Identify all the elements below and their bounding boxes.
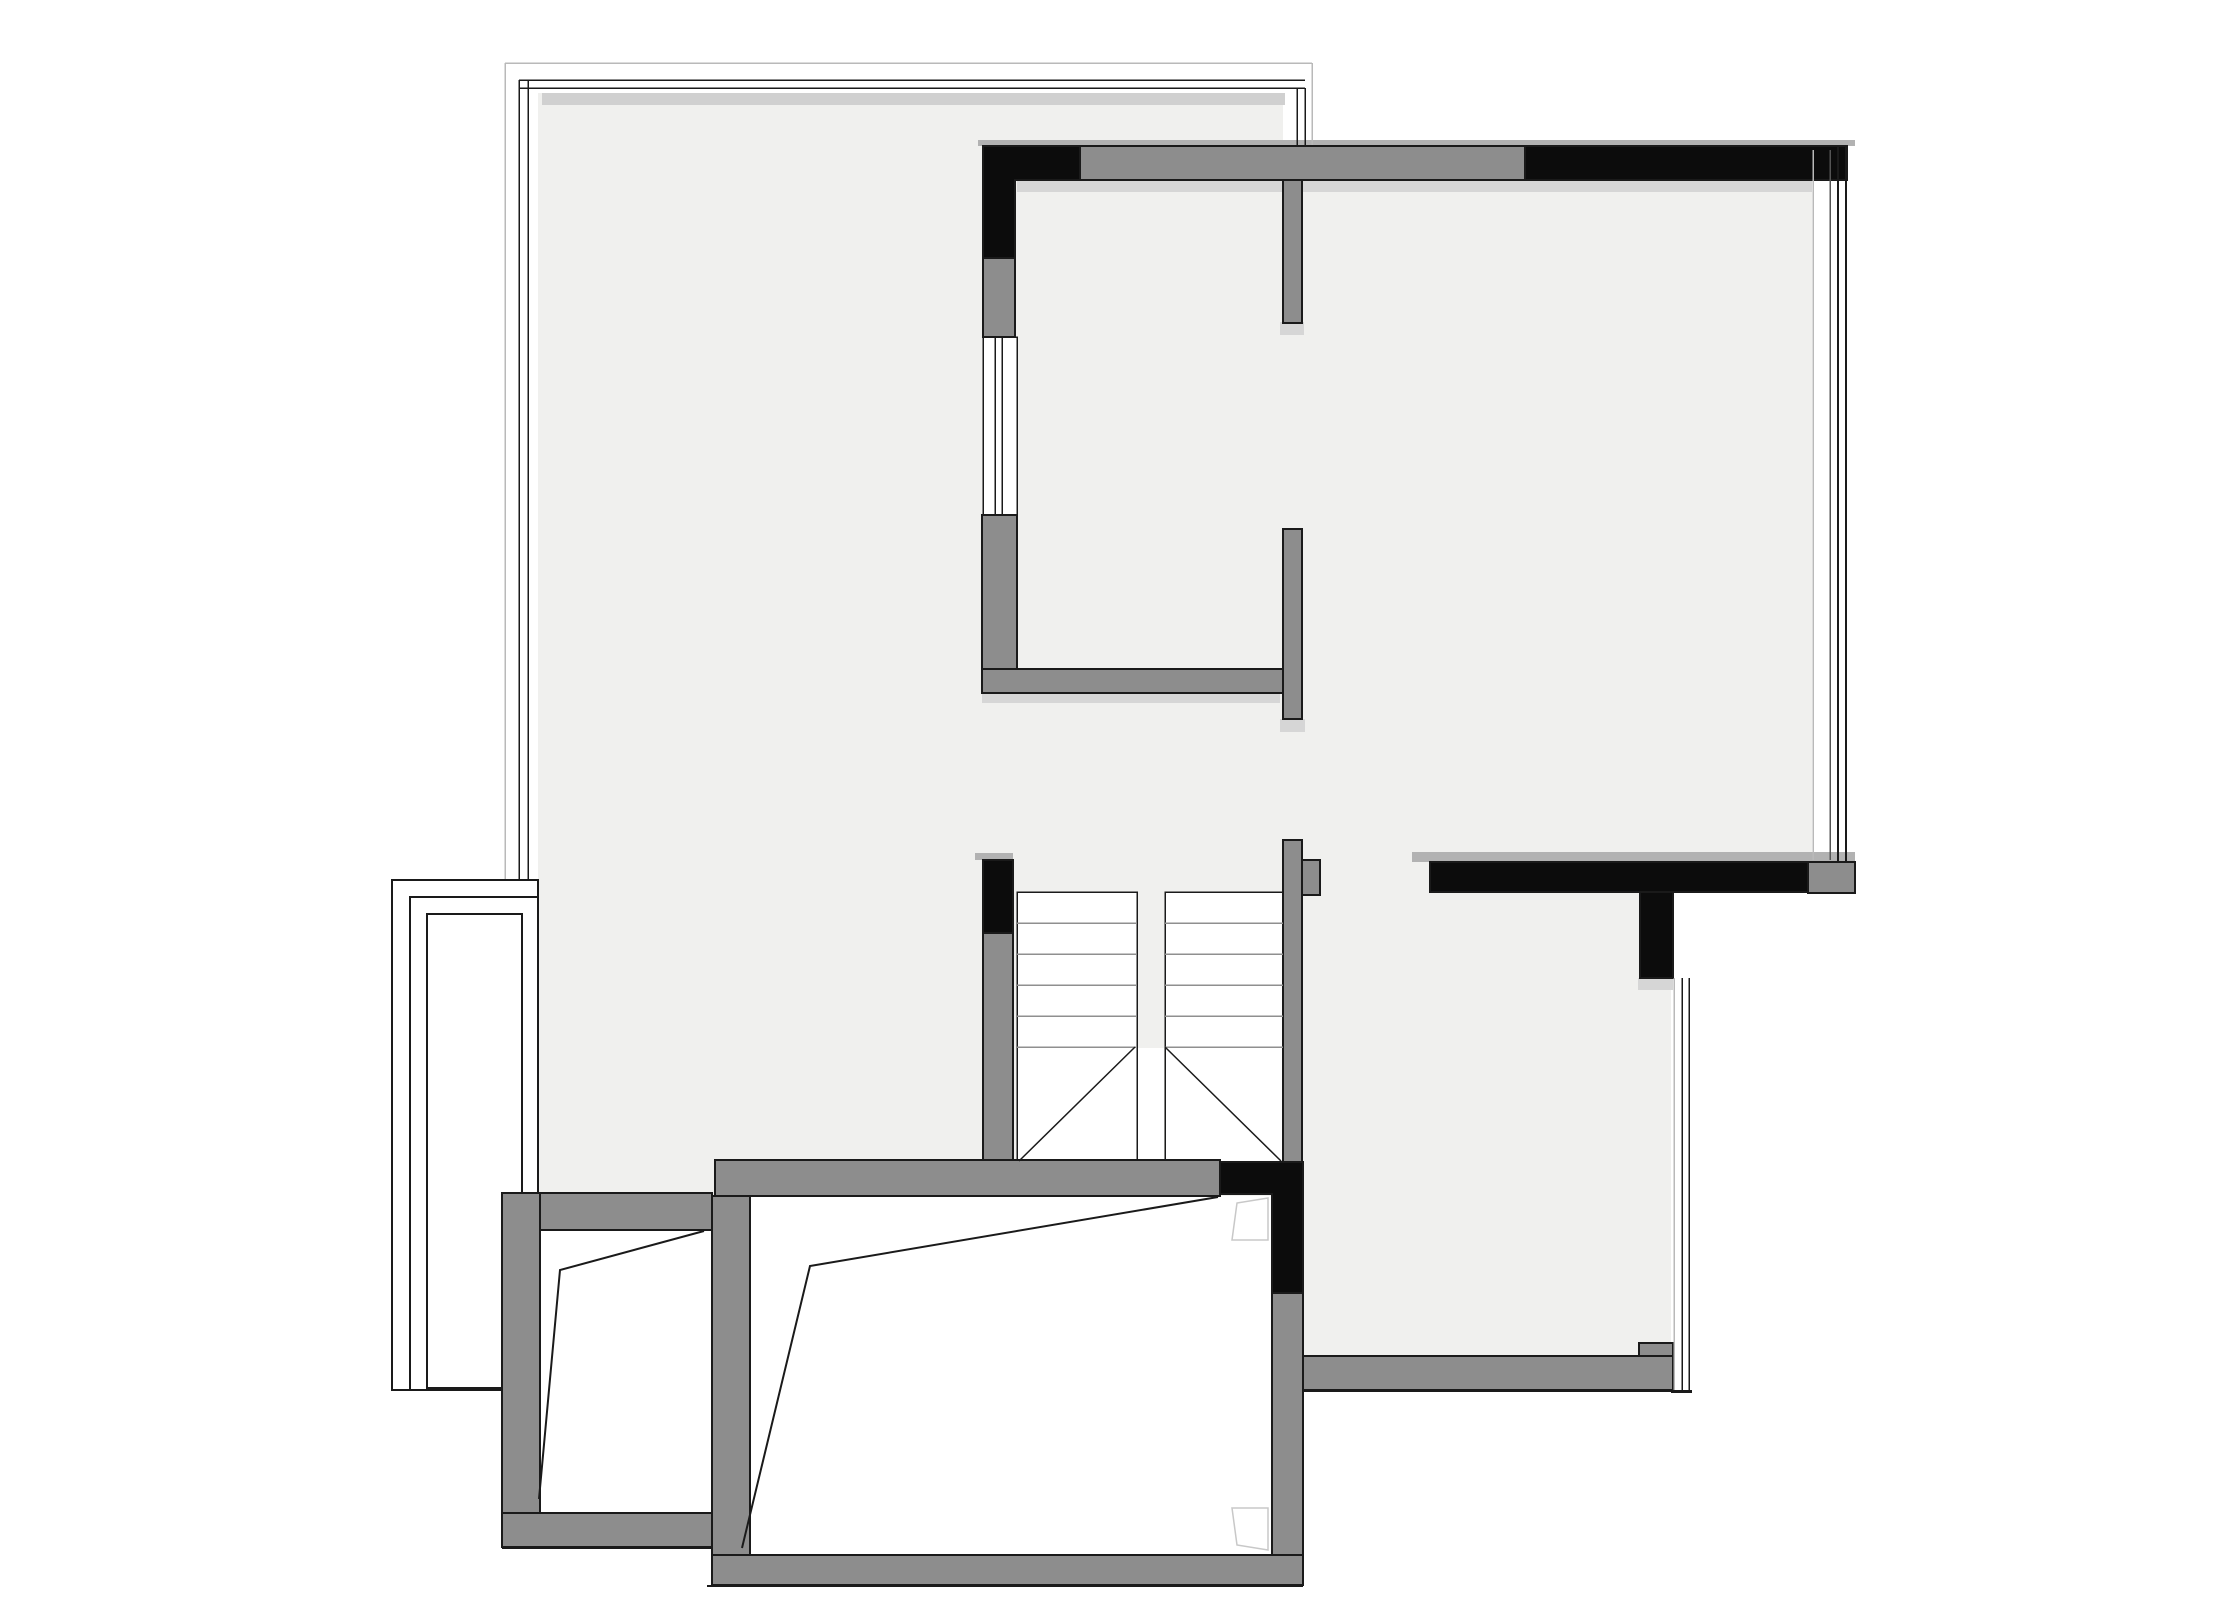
layer-break-lines (539, 1197, 1218, 1548)
ceiling-break-mid-room (742, 1197, 1218, 1548)
ceiling-break-left-room (539, 1231, 704, 1499)
wall-top-main (1080, 146, 1525, 180)
wall-room-mid-right (1272, 1293, 1303, 1555)
black-wall-right-row (1430, 862, 1808, 892)
wall-stairs-bottom (715, 1160, 1220, 1196)
layer-door-symbols (1232, 1198, 1268, 1550)
wall-left-upper-segment (983, 258, 1015, 337)
room-area-lower-right (1303, 892, 1671, 1356)
floor-plan-canvas (0, 0, 2218, 1621)
shadow-below-top-wall-left (1017, 180, 1283, 192)
shadow-above-stair-wall (975, 853, 1013, 860)
black-wall-stub (1640, 892, 1673, 978)
stair-center-landing (1138, 1048, 1164, 1162)
wall-top-right-end-cap (1808, 862, 1855, 893)
room-area-upper-right (1283, 180, 1812, 862)
top-interior-band (542, 93, 1285, 105)
wall-room-left-bottom (502, 1513, 712, 1547)
wall-u-right-vertical (1283, 529, 1302, 719)
wall-u-left-vertical (982, 515, 1017, 693)
wall-u-bottom (982, 669, 1302, 693)
shadow-below-top-wall-right (1302, 180, 1812, 192)
passage-opening (1310, 862, 1430, 892)
door-symbol-lower (1232, 1508, 1268, 1550)
wall-stair-left (983, 933, 1013, 1163)
wall-lower-right-step (1639, 1343, 1673, 1356)
black-wall-stair-left (983, 860, 1013, 933)
wall-rooms-divider (712, 1196, 750, 1585)
window-strip-left-mid (983, 337, 1017, 515)
stair-flight-left (1017, 892, 1137, 1163)
door-symbol-upper (1232, 1198, 1268, 1240)
stair-flight-right (1165, 892, 1283, 1163)
wall-lower-right (1303, 1356, 1673, 1390)
wall-room-mid-bottom (712, 1555, 1303, 1585)
wall-divider-vertical (1283, 180, 1302, 323)
shadow-below-u-wall (982, 693, 1280, 703)
shadow-below-u-wall-right (1280, 719, 1305, 732)
shadow-above-black-wall-right (1412, 852, 1855, 862)
wall-stair-right-notch (1302, 860, 1320, 895)
wall-room-left-side (502, 1193, 540, 1547)
shadow-below-black-stub (1638, 978, 1673, 990)
wall-stair-right (1283, 840, 1302, 1163)
black-wall-top-right (1525, 146, 1847, 180)
floor-plan-page (0, 0, 2218, 1621)
